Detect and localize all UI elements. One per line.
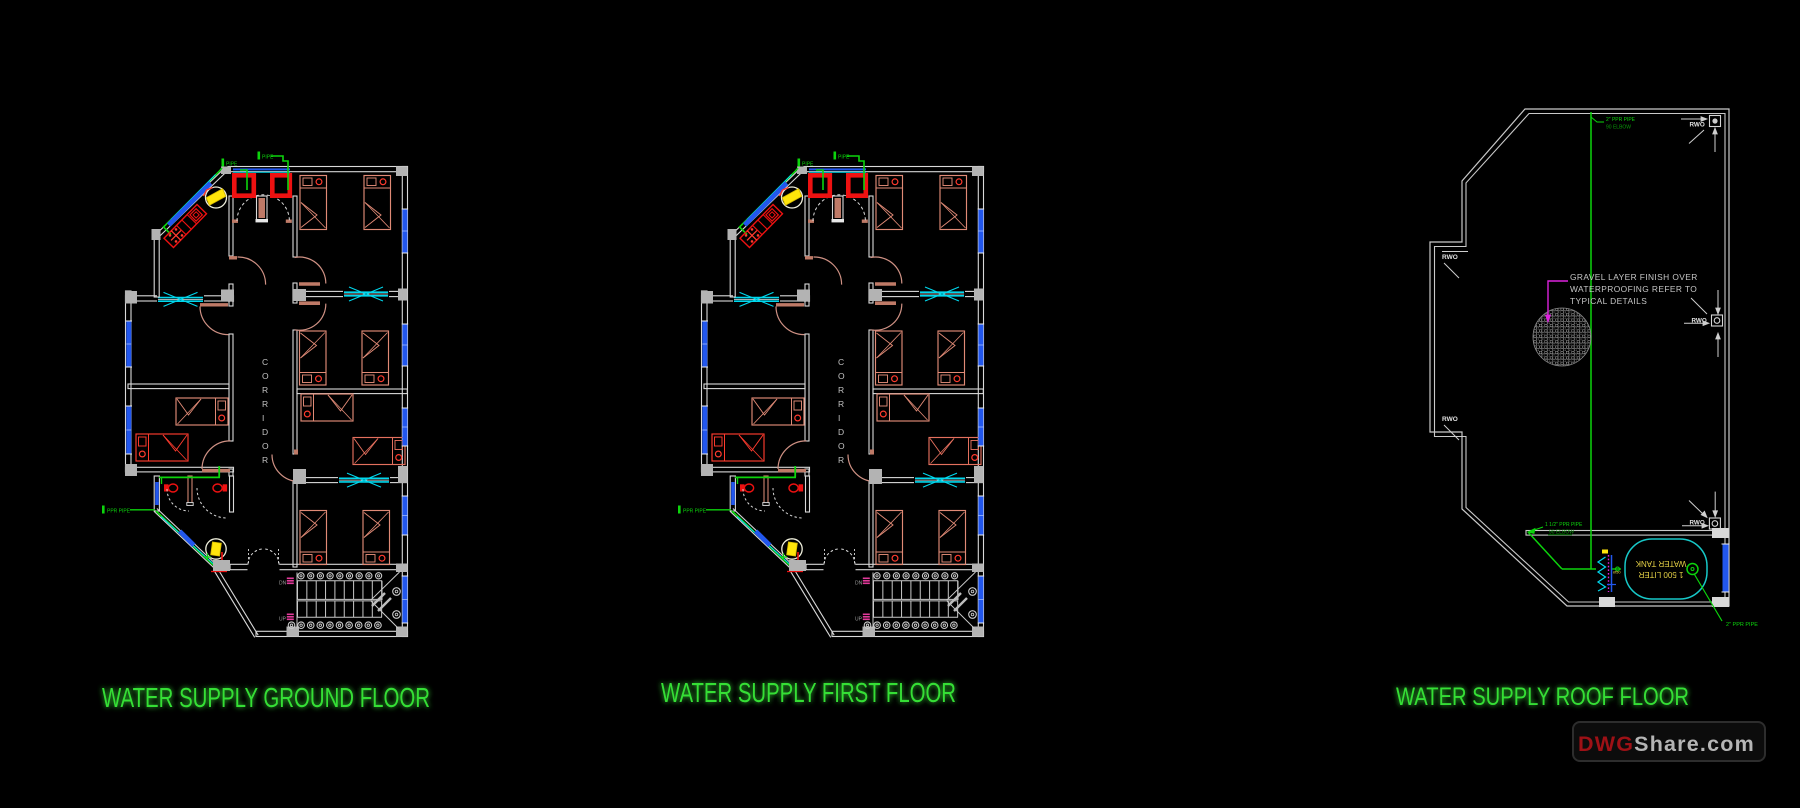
- svg-text:WATERPROOFING REFER TO: WATERPROOFING REFER TO: [1570, 284, 1697, 294]
- svg-text:UP: UP: [279, 617, 287, 623]
- svg-text:PPR PIPE: PPR PIPE: [107, 509, 131, 515]
- svg-text:R: R: [262, 455, 268, 465]
- svg-text:R: R: [262, 385, 268, 395]
- svg-text:WATER SUPPLY GROUND FLOOR: WATER SUPPLY GROUND FLOOR: [102, 682, 430, 713]
- svg-text:Ø50: Ø50: [1613, 570, 1621, 575]
- svg-text:WATER TANK: WATER TANK: [1635, 559, 1686, 568]
- svg-text:RWO: RWO: [1442, 254, 1458, 261]
- svg-text:GRAVEL LAYER FINISH OVER: GRAVEL LAYER FINISH OVER: [1570, 272, 1698, 282]
- svg-text:D: D: [262, 427, 268, 437]
- svg-text:O: O: [262, 371, 269, 381]
- svg-text:1 1/2" PPR PIPE: 1 1/2" PPR PIPE: [1545, 522, 1583, 528]
- svg-text:WATER SUPPLY FIRST FLOOR: WATER SUPPLY FIRST FLOOR: [661, 677, 956, 708]
- svg-text:DN: DN: [279, 581, 287, 587]
- svg-text:RWO: RWO: [1442, 416, 1458, 423]
- svg-text:2" PPR PIPE: 2" PPR PIPE: [1726, 622, 1758, 628]
- svg-text:O: O: [262, 441, 269, 451]
- svg-text:DWGShare.com: DWGShare.com: [1578, 732, 1755, 756]
- svg-text:1 500 LITER: 1 500 LITER: [1638, 570, 1683, 579]
- svg-text:TYPICAL DETAILS: TYPICAL DETAILS: [1570, 296, 1647, 306]
- svg-text:R: R: [262, 399, 268, 409]
- svg-text:PIPE: PIPE: [262, 155, 274, 161]
- svg-text:RWO: RWO: [1690, 121, 1705, 128]
- svg-text:I: I: [262, 413, 264, 423]
- svg-text:90 ELBOW: 90 ELBOW: [1606, 125, 1631, 131]
- svg-text:C: C: [262, 357, 268, 367]
- svg-text:WATER SUPPLY ROOF FLOOR: WATER SUPPLY ROOF FLOOR: [1396, 683, 1689, 711]
- svg-text:PIPE: PIPE: [226, 162, 238, 168]
- svg-text:2" PPR PIPE: 2" PPR PIPE: [1606, 117, 1636, 123]
